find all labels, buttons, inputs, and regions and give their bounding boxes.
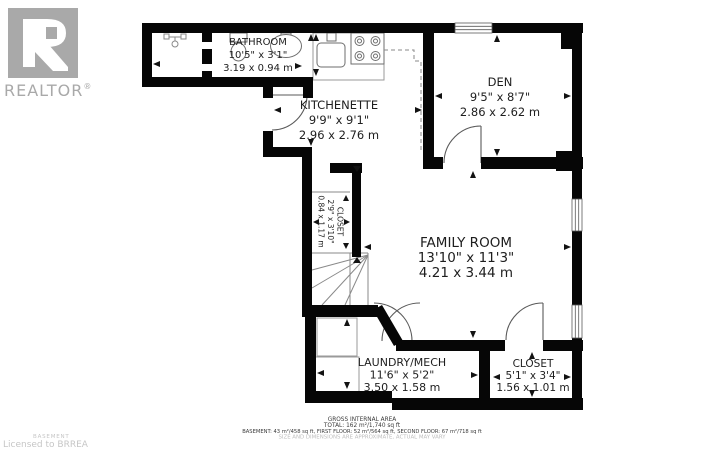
counter-dashed-outline: [384, 50, 421, 153]
den-door: [444, 126, 481, 163]
room-dim-imperial: 2'9" x 3'10": [326, 199, 335, 243]
wall-segment: [572, 338, 582, 410]
wall-segment: [302, 157, 312, 317]
ceiling-light-icon: [164, 34, 186, 47]
washer-dryer-icon: [313, 318, 359, 393]
walls: [142, 23, 583, 410]
wall-segment: [481, 157, 583, 169]
closet-door-bar: [352, 172, 361, 257]
wall-segment: [305, 317, 316, 397]
window-family-right-lower: [572, 305, 582, 338]
wall-segment: [479, 340, 490, 402]
realtor-logo: REALTOR®: [4, 8, 92, 100]
room-name: LAUNDRY/MECH: [358, 356, 446, 369]
room-label-hall-closet: CLOSET 2'9" x 3'10" 0.84 x 1.17 m: [317, 195, 345, 247]
wall-pillar: [561, 23, 582, 49]
room-label-den: DEN 9'5" x 8'7" 2.86 x 2.62 m: [460, 75, 540, 119]
room-dim-imperial: 13'10" x 11'3": [418, 250, 515, 266]
room-dim-metric: 0.84 x 1.17 m: [317, 195, 326, 247]
room-dim-metric: 2.86 x 2.62 m: [460, 105, 540, 119]
window-family-right-upper: [572, 199, 582, 231]
registered-mark: ®: [83, 82, 92, 91]
wall-gap: [202, 42, 212, 49]
wall-segment: [142, 77, 313, 87]
diagonal-wall: [373, 305, 403, 346]
area-summary-disclaimer: SIZE AND DIMENSIONS ARE APPROXIMATE, ACT…: [278, 435, 446, 441]
wall-segment: [302, 305, 378, 317]
wall-segment: [263, 87, 273, 98]
room-dim-imperial: 9'9" x 9'1": [309, 113, 369, 127]
window-den-top: [455, 23, 492, 33]
room-label-kitchenette: KITCHENETTE 9'9" x 9'1" 2.96 x 2.76 m: [299, 98, 379, 142]
wall-segment: [303, 77, 313, 98]
room-label-laundry: LAUNDRY/MECH 11'6" x 5'2" 3.50 x 1.58 m: [358, 356, 446, 394]
wall-gap: [202, 64, 212, 71]
area-summary-total: TOTAL: 162 m²/1,740 sq ft: [323, 422, 401, 429]
room-name: BATHROOM: [229, 37, 287, 48]
wall-segment: [423, 23, 434, 169]
wall-segment: [423, 157, 443, 169]
room-dim-imperial: 9'5" x 8'7": [470, 90, 530, 104]
windows: [455, 23, 582, 338]
wall-segment: [572, 231, 582, 305]
room-name: CLOSET: [513, 358, 554, 370]
room-dim-imperial: 11'6" x 5'2": [370, 369, 435, 382]
room-dim-metric: 3.19 x 0.94 m: [223, 63, 293, 74]
wall-segment: [572, 23, 582, 199]
room-label-bathroom: BATHROOM 10'5" x 3'1" 3.19 x 0.94 m: [223, 37, 293, 74]
room-name: DEN: [488, 75, 513, 89]
license-watermark: Licensed to BRREA: [3, 440, 89, 449]
area-summary: GROSS INTERNAL AREA TOTAL: 162 m²/1,740 …: [242, 417, 482, 441]
floor-plan-canvas: BATHROOM 10'5" x 3'1" 3.19 x 0.94 m KITC…: [0, 0, 720, 449]
floor-plan-page: BATHROOM 10'5" x 3'1" 3.19 x 0.94 m KITC…: [0, 0, 720, 449]
room-name: KITCHENETTE: [300, 98, 378, 112]
realtor-logo-text: REALTOR®: [4, 81, 92, 100]
stairs: [312, 253, 368, 305]
room-dim-imperial: 5'1" x 3'4": [505, 370, 560, 382]
room-name: CLOSET: [336, 207, 345, 237]
room-dim-imperial: 10'5" x 3'1": [229, 50, 288, 61]
stove-icon: [351, 33, 384, 64]
room-dim-metric: 3.50 x 1.58 m: [364, 381, 441, 394]
realtor-wordmark: REALTOR: [4, 81, 83, 100]
room-dim-metric: 2.96 x 2.76 m: [299, 128, 379, 142]
wall-segment: [142, 23, 455, 33]
wall-segment: [392, 398, 583, 410]
bedroom-closet-door: [506, 303, 543, 340]
room-dim-metric: 1.56 x 1.01 m: [496, 382, 569, 394]
wall-segment: [263, 147, 312, 157]
room-dim-metric: 4.21 x 3.44 m: [419, 265, 513, 281]
room-name: FAMILY ROOM: [420, 235, 512, 251]
room-label-bedroom-closet: CLOSET 5'1" x 3'4" 1.56 x 1.01 m: [496, 358, 569, 394]
room-label-family-room: FAMILY ROOM 13'10" x 11'3" 4.21 x 3.44 m: [418, 235, 515, 281]
